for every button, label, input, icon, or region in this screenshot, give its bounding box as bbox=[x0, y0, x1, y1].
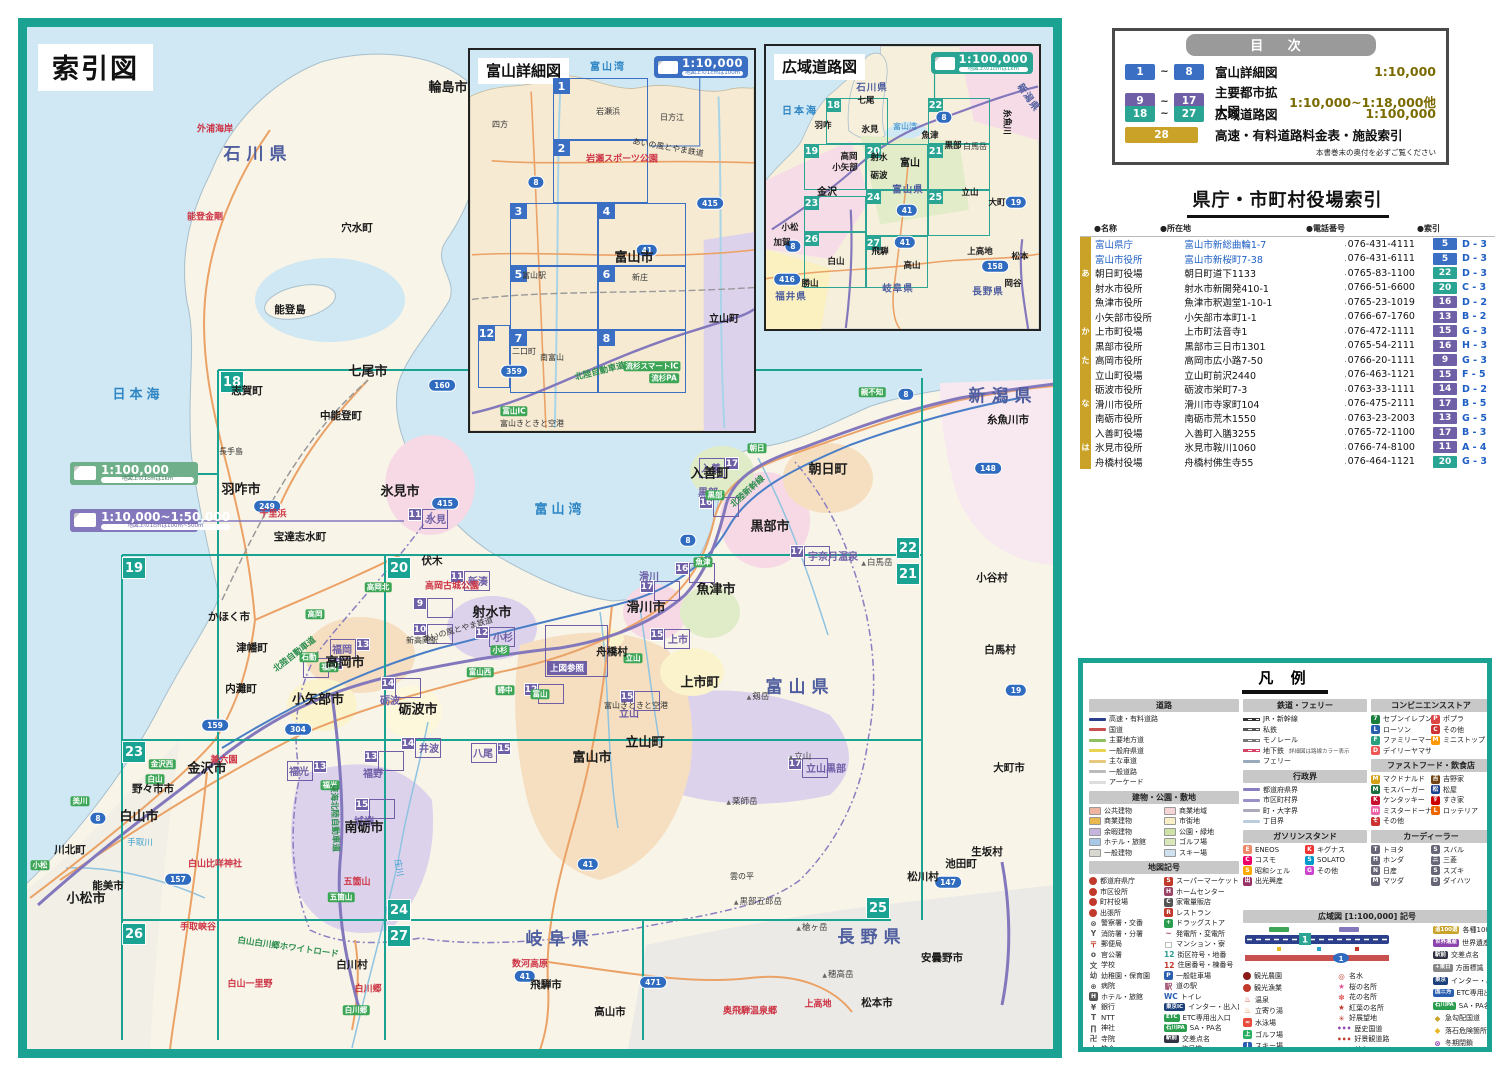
detail-map-marker-label: 滑川 bbox=[639, 568, 659, 583]
map-label-text: 小松市 bbox=[66, 892, 105, 907]
dotted-leader bbox=[1430, 389, 1431, 393]
map-label-text: 穴水町 bbox=[341, 222, 373, 234]
legend-item: ◆落石危険箇所 bbox=[1433, 1026, 1492, 1037]
legend-rail-icon bbox=[1243, 728, 1260, 731]
map-label: 小矢部市 bbox=[292, 694, 344, 707]
detail-map-marker[interactable]: 17 滑川 bbox=[640, 580, 654, 593]
map-label-text: 松本市 bbox=[861, 997, 893, 1009]
office-row[interactable]: 射水市役所 射水市新開発410-1 0766-51-6600 20 C - 3 bbox=[1080, 281, 1495, 296]
interchange-name: 魚津 bbox=[696, 557, 711, 566]
legend-item: ✽花の名所 bbox=[1337, 992, 1429, 1003]
office-page-badge: 17 bbox=[1433, 398, 1457, 410]
legend-item-label: 街区符号・地番 bbox=[1177, 950, 1226, 960]
map-label: 池田町 bbox=[945, 859, 977, 870]
dotted-leader bbox=[1344, 375, 1345, 379]
map-label-text: 日方江 bbox=[660, 113, 684, 122]
dotted-leader bbox=[1344, 433, 1345, 437]
legend-rail-icon bbox=[1243, 760, 1260, 763]
map-label-text: 富山駅 bbox=[522, 271, 546, 280]
legend-item: 公園・緑地 bbox=[1164, 827, 1239, 838]
map-label: 富山県 bbox=[766, 680, 835, 697]
route-shield: 157 bbox=[164, 873, 192, 886]
route-number: 8 bbox=[685, 535, 690, 544]
legend-brand-icon: 7 bbox=[1371, 715, 1380, 724]
legend-boundary-icon bbox=[1243, 809, 1260, 812]
legend-symbol-icon: Y bbox=[1089, 929, 1098, 938]
map-label: 輪島市 bbox=[428, 82, 467, 95]
office-row[interactable]: 立山町役場 立山町前沢2440 076-463-1121 15 F - 5 bbox=[1080, 368, 1495, 383]
legend-wide-c-items: 道100選各種100選世界遺産世界遺産駅前交差点名+東日方面標識東京インター・出… bbox=[1433, 925, 1492, 1052]
map-label-text: 数河高原 bbox=[512, 960, 548, 970]
legend-item-label: 昭和シェル bbox=[1255, 866, 1290, 876]
legend-item: 一般道路 bbox=[1089, 767, 1239, 778]
legend-item: Fファミリーマート bbox=[1371, 735, 1431, 746]
map-label: 二口町 bbox=[512, 348, 536, 356]
detail-map-marker[interactable]: 9 bbox=[413, 597, 427, 610]
legend-symbol-icon: WC bbox=[1164, 992, 1178, 1001]
detail-map-marker-number: 15 bbox=[651, 630, 664, 640]
map-label: 富山きときと空港 bbox=[500, 420, 564, 428]
map-label-text: 能登金剛 bbox=[187, 213, 223, 223]
legend-item-label: 三菱 bbox=[1443, 855, 1457, 865]
map-label-text: 射水 bbox=[870, 153, 887, 163]
dotted-leader bbox=[1181, 331, 1182, 335]
map-label: 五箇山 bbox=[343, 879, 370, 888]
legend-item-label: コスモ bbox=[1255, 855, 1276, 865]
map-label: 富山 bbox=[900, 159, 920, 169]
legend-item: N日産 bbox=[1371, 866, 1431, 877]
map-label-text: 飛騨市 bbox=[530, 979, 562, 991]
map-label: 大町市 bbox=[993, 763, 1025, 774]
interchange-name: 富山IC bbox=[502, 406, 525, 415]
legend-poi-icon: ≈ bbox=[1243, 1018, 1252, 1027]
detail-map-marker-label: 立山黒部 bbox=[806, 760, 846, 775]
legend-swatch-icon bbox=[1164, 838, 1176, 846]
dotted-leader bbox=[1430, 433, 1431, 437]
route-shield: 160 bbox=[428, 379, 456, 392]
legend-item: S昭和シェル bbox=[1243, 866, 1305, 877]
legend-item-label: ポプラ bbox=[1443, 714, 1464, 724]
office-page-badge: 9 bbox=[1433, 354, 1457, 366]
office-row[interactable]: 砺波市役所 砺波市栄町7-3 0763-33-1111 14 D - 2 bbox=[1080, 382, 1495, 397]
legend-item-label: 市街地 bbox=[1179, 816, 1200, 826]
detail-map-marker-label: 八尾 bbox=[473, 745, 493, 760]
toc-row[interactable]: 9 ~ 17 主要都市拡大図 1:10,000~1:18,000他 bbox=[1125, 82, 1436, 103]
map-label-text: 池田町 bbox=[945, 858, 977, 870]
legend-poi-icon: ••• bbox=[1337, 1035, 1351, 1044]
office-name: 入善町役場 bbox=[1091, 426, 1179, 440]
map-label: 手取川 bbox=[127, 839, 153, 848]
inset-cell-number: 26 bbox=[804, 232, 819, 246]
legend-item-label: 一般府県道 bbox=[1109, 746, 1144, 756]
legend-symbol-icon: ⊕ bbox=[1089, 982, 1098, 991]
legend-section-conbini: コンビニエンスストア bbox=[1371, 699, 1491, 712]
legend-item-label: インター・出入口 bbox=[1188, 1002, 1239, 1012]
legend-item-label: 好展望地 bbox=[1349, 1013, 1377, 1023]
route-number: 415 bbox=[437, 498, 453, 507]
route-number: 304 bbox=[290, 724, 306, 733]
dotted-leader bbox=[1344, 244, 1345, 248]
legend-item-label: 冬期閉鎖 bbox=[1445, 1038, 1473, 1048]
dotted-leader bbox=[1430, 259, 1431, 263]
legend-item-label: デイリーヤマザキ bbox=[1383, 746, 1431, 756]
legend-symbol-icon: ¥ bbox=[1089, 1003, 1098, 1012]
legend-item-label: 消防署・分署 bbox=[1101, 929, 1143, 939]
map-label-text: 勝山 bbox=[801, 279, 818, 289]
legend-symbol-icon: 幼 bbox=[1089, 971, 1098, 980]
grid-page-number[interactable]: 22 bbox=[896, 537, 920, 559]
detail-map-marker[interactable]: 16 bbox=[675, 562, 689, 575]
detail-map-marker-number: 13 bbox=[357, 640, 370, 650]
toc-row[interactable]: 1 ~ 8 富山詳細図 1:10,000 bbox=[1125, 61, 1436, 82]
map-label-text: 氷見 bbox=[861, 125, 878, 135]
detail-map-marker[interactable]: 13 福光 bbox=[313, 760, 327, 773]
office-phone: 0765-72-1100 bbox=[1348, 427, 1428, 438]
grid-page-number-text: 25 bbox=[869, 901, 887, 916]
office-row[interactable]: な 滑川市役所 滑川市寺家町104 076-475-2111 17 B - 5 bbox=[1080, 397, 1495, 412]
office-page-badge: 16 bbox=[1433, 296, 1457, 308]
highway-sample-diagram: 1 1 bbox=[1243, 925, 1391, 967]
legend-brand-icon: 出 bbox=[1243, 877, 1252, 886]
legend-brand-icon: N bbox=[1371, 866, 1380, 875]
dotted-leader bbox=[1430, 462, 1431, 466]
grid-page-number[interactable]: 23 bbox=[122, 741, 146, 763]
legend-item-label: 世界遺産 bbox=[1462, 938, 1490, 948]
dotted-leader bbox=[1430, 418, 1431, 422]
legend-item-label: 私鉄 bbox=[1263, 725, 1277, 735]
legend-item: 国三芳ETC専用出入口 bbox=[1433, 988, 1492, 999]
map-label-text: 糸魚川市 bbox=[987, 414, 1029, 426]
office-grid-ref: D - 3 bbox=[1457, 253, 1495, 264]
legend-item-label: 高速・有料道路 bbox=[1109, 714, 1158, 724]
office-address: 氷見市鞍川1060 bbox=[1184, 440, 1342, 454]
legend-poi-icon: J bbox=[1243, 1042, 1252, 1051]
legend-symbol-icon: 卍 bbox=[1089, 1034, 1098, 1043]
map-label: 黒部市 bbox=[750, 521, 789, 534]
office-grid-ref: G - 3 bbox=[1457, 326, 1495, 337]
map-label-text: 大町市 bbox=[993, 762, 1025, 774]
legend-item: 12街区符号・地番 bbox=[1164, 950, 1239, 961]
legend-item-label: 主な車道 bbox=[1109, 756, 1137, 766]
office-name: 魚津市役所 bbox=[1091, 295, 1179, 309]
dotted-leader bbox=[1430, 302, 1431, 306]
dotted-leader bbox=[1430, 331, 1431, 335]
legend-brand-icon: 松 bbox=[1431, 785, 1440, 794]
inset-cell[interactable]: 23 bbox=[804, 196, 866, 232]
office-address: 入善町入膳3255 bbox=[1184, 426, 1342, 440]
office-grid-ref: H - 3 bbox=[1457, 340, 1495, 351]
map-label-text: 富山湾 bbox=[893, 122, 917, 131]
dotted-leader bbox=[1344, 346, 1345, 350]
legend-brand-icon: S bbox=[1243, 866, 1252, 875]
map-label: 東海北陸自動車道 bbox=[329, 784, 340, 852]
kana-group-tab bbox=[1080, 411, 1091, 426]
inset-cell[interactable]: 2 bbox=[553, 140, 648, 203]
toc-row[interactable]: 18 ~ 27 広域道路図 1:100,000 bbox=[1125, 103, 1436, 124]
legend-item-label: その他 bbox=[1383, 816, 1404, 826]
legend-poi-icon: 国三芳 bbox=[1433, 989, 1454, 997]
office-page-badge: 5 bbox=[1433, 253, 1457, 265]
office-row[interactable]: 入善町役場 入善町入膳3255 0765-72-1100 17 B - 3 bbox=[1080, 426, 1495, 441]
office-row[interactable]: 南砺市役所 南砺市荒木1550 0763-23-2003 13 G - 5 bbox=[1080, 411, 1495, 426]
grid-page-number[interactable]: 27 bbox=[387, 925, 411, 947]
map-label-text: 富山湾 bbox=[590, 62, 626, 73]
detail-map-marker[interactable]: 15 八尾 bbox=[497, 742, 511, 755]
route-number: 8 bbox=[95, 813, 100, 822]
legend-item-label: 名水 bbox=[1349, 971, 1363, 981]
legend-item: 幼幼稚園・保育園 bbox=[1089, 971, 1164, 982]
legend-item-label: SA・PA名 bbox=[1459, 1001, 1491, 1011]
map-label: 岐阜県 bbox=[526, 932, 595, 949]
office-page-badge: 15 bbox=[1433, 369, 1457, 381]
office-row[interactable]: か 上市町役場 上市町法音寺1 076-472-1111 15 G - 3 bbox=[1080, 324, 1495, 339]
legend-item-label: モノレール bbox=[1263, 735, 1298, 745]
map-label: 石川県 bbox=[856, 83, 888, 93]
legend-item: ETCETC専用出入口 bbox=[1164, 1013, 1239, 1024]
legend-brand-icon: K bbox=[1305, 845, 1314, 854]
legend-item-label: 桜の名所 bbox=[1349, 982, 1377, 992]
legend-poi-icon: ••• bbox=[1337, 1024, 1351, 1033]
legend-item-label: スキー場 bbox=[1179, 848, 1207, 858]
office-row[interactable]: 舟橋村役場 舟橋村佛生寺55 076-464-1121 20 G - 3 bbox=[1080, 455, 1495, 470]
map-label: 野々市市 bbox=[132, 784, 174, 795]
legend-poi-icon: ★ bbox=[1337, 1003, 1346, 1012]
legend-item-label: トヨタ bbox=[1383, 845, 1404, 855]
dotted-leader bbox=[1181, 317, 1182, 321]
map-label: 上市町 bbox=[680, 677, 719, 690]
office-row[interactable]: 黒部市役所 黒部市三日市1301 0765-54-2111 16 H - 3 bbox=[1080, 339, 1495, 354]
kana-group-tab bbox=[1080, 252, 1091, 267]
legend-item: 十教会 bbox=[1089, 1044, 1164, 1052]
legend-item-label: スバル bbox=[1443, 845, 1464, 855]
legend-symbol-icon: 十 bbox=[1089, 1045, 1098, 1052]
detail-map-marker[interactable]: 17 宇奈月温泉 bbox=[790, 545, 804, 558]
route-number: 158 bbox=[987, 261, 1003, 270]
grid-page-number-text: 27 bbox=[390, 929, 408, 944]
interchange-name: 金沢西 bbox=[151, 759, 174, 768]
legend-symbol-icon: P bbox=[1164, 971, 1173, 980]
legend-item-label: 都道府県界 bbox=[1263, 785, 1298, 795]
legend-item-label: 信号機 bbox=[1181, 1044, 1202, 1052]
inset-cell[interactable]: 25 bbox=[928, 190, 990, 236]
legend-brand-icon: そ bbox=[1371, 817, 1380, 826]
legend-item-label: 町村役場 bbox=[1100, 897, 1128, 907]
map-label-text: 新潟県 bbox=[969, 387, 1038, 407]
office-row[interactable]: 小矢部市役所 小矢部市本町1-1 0766-67-1760 13 B - 2 bbox=[1080, 310, 1495, 325]
detail-map-marker[interactable]: 13 福岡 bbox=[356, 638, 370, 651]
legend-poi-icon: ⊗ bbox=[1433, 1039, 1442, 1048]
map-label-text: 手取川 bbox=[127, 838, 153, 848]
map-label-text: 七尾市 bbox=[348, 365, 387, 380]
office-name: 高岡市役所 bbox=[1091, 353, 1179, 367]
map-label: 富山市 bbox=[614, 252, 653, 265]
page-icon bbox=[658, 61, 678, 74]
legend-item: Kキグナス bbox=[1305, 845, 1367, 856]
detail-map-marker-label: 氷見 bbox=[426, 511, 446, 526]
map-label: 日本海 bbox=[112, 389, 163, 402]
legend-rail-icon bbox=[1243, 749, 1260, 752]
header-phone: ●電話番号 bbox=[1306, 223, 1345, 234]
detail-map-marker-label: 井波 bbox=[419, 740, 439, 755]
detail-map-marker[interactable]: 14 井波 bbox=[401, 737, 415, 750]
map-label-text: 岐阜県 bbox=[882, 283, 914, 294]
office-page-badge: 14 bbox=[1433, 383, 1457, 395]
dotted-leader bbox=[1181, 389, 1182, 393]
legend-item-label: 一般駐車場 bbox=[1176, 971, 1211, 981]
grid-page-number[interactable]: 19 bbox=[122, 557, 146, 579]
legend-conbini-items: 7セブンイレブンPポプラLローソンCその他FファミリーマートMミニストップDデイ… bbox=[1371, 714, 1491, 756]
map-label: 日本海 bbox=[782, 107, 818, 117]
map-label-text: 津幡町 bbox=[236, 642, 268, 654]
legend-brand-icon: L bbox=[1431, 806, 1440, 815]
legend-brand-icon: S bbox=[1431, 845, 1440, 854]
legend-item: □マンション・寮 bbox=[1164, 939, 1239, 950]
office-grid-ref: B - 2 bbox=[1457, 311, 1495, 322]
legend-item-label: 市区役所 bbox=[1100, 887, 1128, 897]
legend-item-label: ダイハツ bbox=[1443, 876, 1471, 886]
legend-item-label: 花の名所 bbox=[1349, 992, 1377, 1002]
map-label: 安曇野市 bbox=[921, 953, 963, 964]
inset-cell[interactable]: 3 bbox=[510, 203, 598, 266]
legend-item: EENEOS bbox=[1243, 845, 1305, 856]
toc-entry-scale: 1:10,000 bbox=[1374, 64, 1436, 79]
legend-item: フェリー bbox=[1243, 756, 1367, 767]
legend-item: 吉吉野家 bbox=[1431, 774, 1491, 785]
office-phone: 076-463-1121 bbox=[1348, 369, 1428, 380]
map-label-text: 岡谷 bbox=[1004, 279, 1021, 289]
map-label-text: 富山きときと空港 bbox=[604, 701, 668, 710]
legend-brand-icon: K bbox=[1371, 796, 1380, 805]
inset-cell[interactable]: 12 bbox=[478, 325, 510, 388]
legend-item-label: 国道 bbox=[1109, 725, 1123, 735]
kana-group-tab bbox=[1080, 281, 1091, 296]
map-label: 日方江 bbox=[660, 114, 684, 122]
office-row[interactable]: た 高岡市役所 高岡市広小路7-50 0766-20-1111 9 G - 3 bbox=[1080, 353, 1495, 368]
legend-item: 東京インター・出入口 bbox=[1433, 975, 1492, 986]
grid-page-number[interactable]: 26 bbox=[122, 923, 146, 945]
map-label-text: 日本海 bbox=[782, 106, 818, 117]
office-row[interactable]: あ 朝日町役場 朝日町道下1133 0765-83-1100 22 D - 3 bbox=[1080, 266, 1495, 281]
legend-item: Y消防署・分署 bbox=[1089, 929, 1164, 940]
legend-item-label: 紅葉の名所 bbox=[1349, 1003, 1384, 1013]
map-label: 津幡町 bbox=[236, 643, 268, 654]
route-number: 148 bbox=[980, 463, 996, 472]
legend-item-label: 住居番号・棟番号 bbox=[1177, 960, 1233, 970]
map-label: 砺波 bbox=[870, 172, 887, 181]
map-label-text: 白川郷 bbox=[354, 985, 381, 995]
office-row[interactable]: は 氷見市役所 氷見市鞍川1060 0766-74-8100 11 A - 4 bbox=[1080, 440, 1495, 455]
map-label: 加賀 bbox=[773, 239, 790, 248]
legend-item: 丁目界 bbox=[1243, 816, 1367, 827]
detail-map-coverage-box bbox=[427, 598, 453, 618]
legend-section-symbols: 地図記号 bbox=[1089, 861, 1239, 874]
legend-item: 一般建物 bbox=[1089, 848, 1164, 859]
legend-symbol-icon: S bbox=[1164, 877, 1173, 886]
office-index-rows: 富山県庁 富山市新総曲輪1-7 076-431-4111 5 D - 3 富山市… bbox=[1080, 236, 1495, 469]
detail-map-marker[interactable]: 11 氷見 bbox=[408, 508, 422, 521]
legend-brand-icon: M bbox=[1431, 736, 1440, 745]
grid-page-number[interactable]: 25 bbox=[866, 897, 890, 919]
legend-item: Sスバル bbox=[1431, 845, 1491, 856]
office-page-badge: 15 bbox=[1433, 325, 1457, 337]
map-label-text: 南砺市 bbox=[344, 821, 383, 836]
route-number: 416 bbox=[779, 274, 795, 283]
legend-item: 観光漁業 bbox=[1243, 983, 1335, 994]
map-label: 松川村 bbox=[907, 872, 939, 883]
grid-page-number-text: 20 bbox=[390, 561, 408, 576]
map-label: 岡谷 bbox=[1004, 280, 1021, 289]
svg-text:1: 1 bbox=[1302, 936, 1308, 946]
office-grid-ref: A - 4 bbox=[1457, 442, 1495, 453]
map-label-text: 立山町 bbox=[709, 314, 739, 325]
office-row[interactable]: 富山市役所 富山市新桜町7-38 076-431-6111 5 D - 3 bbox=[1080, 252, 1495, 267]
office-row[interactable]: 魚津市役所 魚津市釈迦堂1-10-1 0765-23-1019 16 D - 2 bbox=[1080, 295, 1495, 310]
map-label: 中能登町 bbox=[320, 411, 362, 422]
legend-item-label: 市区町村界 bbox=[1263, 795, 1298, 805]
legend-section-gas: ガソリンスタンド bbox=[1243, 830, 1367, 843]
map-label-text: 白山市 bbox=[119, 810, 158, 825]
interchange-badge: 富山西 bbox=[467, 667, 494, 677]
dotted-leader bbox=[1181, 447, 1182, 451]
legend-item-label: 郵便局 bbox=[1101, 939, 1122, 949]
legend-item: Rレストラン bbox=[1164, 908, 1239, 919]
detail-map-marker[interactable]: 15 城端 bbox=[355, 798, 369, 811]
map-label: 黒部 bbox=[944, 142, 961, 151]
office-address: 朝日町道下1133 bbox=[1184, 266, 1342, 280]
grid-page-number[interactable]: 20 bbox=[387, 557, 411, 579]
legend-symbol-icon: R bbox=[1164, 908, 1173, 917]
route-shield: 415 bbox=[431, 497, 459, 510]
legend-item: 主要地方道 bbox=[1089, 735, 1239, 746]
legend-brand-icon: S bbox=[1431, 866, 1440, 875]
office-name: 上市町役場 bbox=[1091, 324, 1179, 338]
map-label-text: 魚津 bbox=[921, 131, 938, 141]
legend-brand-icon: D bbox=[1431, 877, 1440, 886]
legend-buildings-items: 公共建物商業地域商業建物市街地余暇建物公園・緑地ホテル・旅館ゴルフ場一般建物スキ… bbox=[1089, 806, 1239, 859]
detail-map-marker-label: 砺波 bbox=[380, 692, 400, 707]
legend-item-label: 水泳場 bbox=[1255, 1018, 1276, 1028]
detail-map-marker[interactable]: 15 上市 bbox=[650, 628, 664, 641]
map-label: 立山 bbox=[961, 189, 978, 198]
toc-row[interactable]: 28 高速・有料道路料金表・施設索引 bbox=[1125, 124, 1436, 145]
office-row[interactable]: 富山県庁 富山市新総曲輪1-7 076-431-4111 5 D - 3 bbox=[1080, 237, 1495, 252]
legend-symbol-icon bbox=[1089, 898, 1097, 906]
legend-item: mミスタードーナツ bbox=[1371, 806, 1431, 817]
legend-poi-icon bbox=[1243, 984, 1251, 992]
map-label: 糸魚川 bbox=[1002, 109, 1011, 135]
dotted-leader bbox=[1344, 462, 1345, 466]
detail-map-marker[interactable]: 13 福野 bbox=[364, 750, 378, 763]
map-label: 長野県 bbox=[972, 287, 1004, 297]
map-label-text: 石川県 bbox=[856, 82, 888, 93]
office-name: 砺波市役所 bbox=[1091, 382, 1179, 396]
grid-page-number[interactable]: 24 bbox=[387, 899, 411, 921]
grid-page-number[interactable]: 21 bbox=[896, 563, 920, 585]
grid-page-number-text: 21 bbox=[899, 567, 917, 582]
page-icon bbox=[74, 466, 96, 480]
route-number: 41 bbox=[520, 971, 530, 980]
map-label-text: 高岡古城公園 bbox=[425, 582, 479, 592]
dotted-leader bbox=[1181, 418, 1182, 422]
dotted-leader bbox=[1430, 273, 1431, 277]
legend-item-label: 官公署 bbox=[1101, 950, 1122, 960]
map-label-text: 小松 bbox=[781, 223, 798, 233]
map-label: 白山 bbox=[827, 258, 844, 267]
map-label-text: 五箇山 bbox=[343, 878, 370, 888]
map-label: 白山一里野 bbox=[227, 981, 272, 990]
detail-map-marker[interactable]: 14 砺波 bbox=[381, 677, 395, 690]
map-label-text: 黒部市 bbox=[750, 520, 789, 535]
